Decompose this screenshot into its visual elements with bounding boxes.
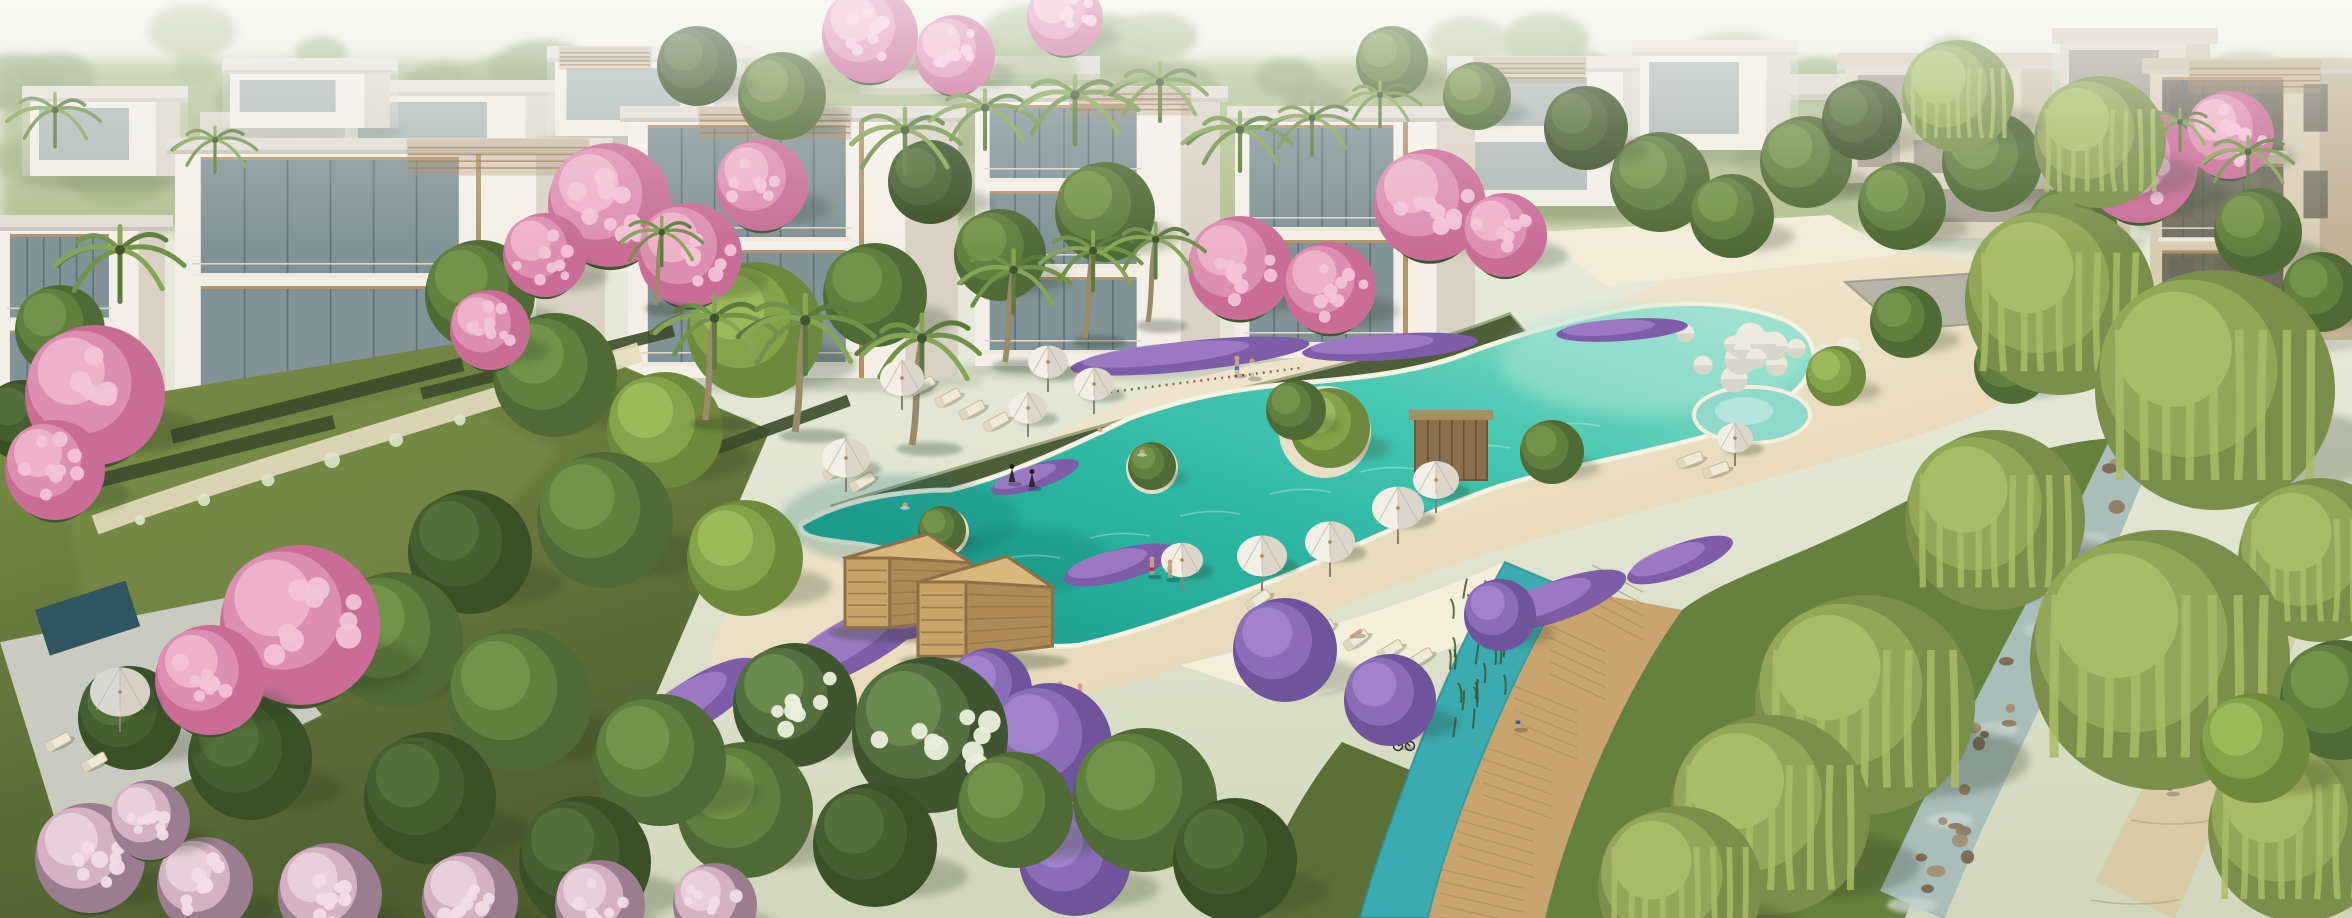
willow-strand	[2039, 253, 2041, 372]
canopy-highlight	[1242, 607, 1292, 657]
blossom-speckle	[959, 709, 975, 725]
person-shadow	[1233, 374, 1247, 379]
parasol-finial	[1092, 382, 1096, 386]
creek-ripple	[1887, 897, 1937, 913]
person-head	[1250, 359, 1255, 364]
cabana-slat	[848, 616, 887, 618]
blossom-speckle	[1264, 269, 1277, 282]
willow-strand	[2108, 595, 2110, 758]
canopy-highlight	[999, 694, 1059, 754]
palm-crown-center	[710, 313, 719, 322]
palm-crown-center	[1009, 266, 1018, 275]
creek-rock	[1948, 823, 1964, 829]
willow-strand	[2190, 330, 2191, 480]
blossom-speckle	[823, 672, 837, 686]
willow-strand	[1744, 847, 1746, 918]
blossom-speckle	[467, 891, 478, 902]
blossom-speckle	[1319, 311, 1331, 323]
person-head	[1078, 684, 1083, 689]
blossom-speckle	[288, 579, 310, 601]
blossom-speckle	[40, 488, 52, 500]
blossom-speckle	[973, 727, 990, 744]
palm-shadow	[897, 442, 963, 456]
canopy-highlight	[824, 794, 884, 854]
blossom-speckle	[70, 466, 84, 480]
pavilion-slat	[1475, 418, 1477, 480]
cabana-slat	[848, 570, 887, 572]
willow-strand	[1994, 475, 1996, 588]
cabana-slat	[921, 594, 963, 596]
canopy-highlight	[23, 293, 66, 336]
white-shrub-ball	[455, 415, 466, 426]
canopy-highlight	[2210, 703, 2263, 756]
blossom-speckle	[1319, 264, 1329, 274]
blossom-speckle	[1358, 280, 1368, 290]
willow-strand	[1663, 847, 1665, 918]
canopy-highlight	[1271, 385, 1300, 414]
person-torso	[1168, 564, 1172, 571]
willow-strand	[1931, 650, 1933, 788]
canopy-highlight	[1526, 426, 1557, 457]
cabana-slat	[848, 604, 887, 606]
canopy-highlight	[419, 501, 479, 561]
creek-rock	[1952, 834, 1968, 847]
willow-strand	[1959, 475, 1961, 588]
balcony-slab	[192, 273, 467, 277]
person-shorts	[1235, 367, 1239, 371]
abaya-head	[1030, 469, 1035, 474]
canopy-highlight	[376, 744, 439, 807]
blossom-speckle	[49, 469, 63, 483]
willow-strand	[2054, 595, 2056, 758]
person-torso	[1150, 561, 1154, 568]
person-head	[1235, 356, 1240, 361]
parasol-finial	[1260, 554, 1264, 558]
willow-strand	[2298, 784, 2300, 899]
blossom-speckle	[1314, 294, 1328, 308]
person-head	[1516, 710, 1521, 715]
white-boulder	[1746, 348, 1766, 368]
blossom-speckle	[484, 325, 495, 336]
person-leg	[1516, 724, 1517, 728]
willow-strand	[1613, 847, 1614, 918]
canopy-highlight	[697, 510, 753, 566]
canopy-highlight	[549, 464, 614, 529]
person-shadow	[2166, 792, 2180, 797]
willow-strand	[1864, 650, 1865, 788]
person-shorts	[1168, 571, 1172, 575]
blossom-speckle	[189, 675, 201, 687]
blossom-speckle	[1327, 293, 1337, 303]
blossom-speckle	[617, 897, 629, 909]
person-shorts	[1516, 721, 1520, 725]
willow-strand	[1713, 847, 1715, 918]
blossom-speckle	[709, 896, 721, 908]
canopy-highlight	[606, 706, 669, 769]
willow-strand	[1922, 475, 1923, 588]
willow-strand	[2319, 519, 2321, 622]
swim-ripple	[1095, 431, 1105, 434]
blossom-speckle	[52, 432, 67, 447]
parasol-finial	[118, 690, 122, 694]
willow-strand	[2048, 475, 2050, 588]
person-leg	[1235, 370, 1236, 374]
canopy-highlight	[1086, 741, 1155, 810]
blossom-speckle	[172, 654, 189, 671]
person-leg	[1253, 373, 1254, 377]
blossom-speckle	[205, 675, 220, 690]
parasol-finial	[1396, 506, 1400, 510]
creek-rock	[1999, 657, 2014, 665]
blossom-speckle	[911, 723, 927, 739]
person-shadow	[1028, 487, 1042, 492]
blossom-speckle	[495, 303, 507, 315]
willow-strand	[2281, 784, 2282, 899]
blossom-speckle	[1335, 277, 1347, 289]
willow-strand	[2336, 784, 2338, 899]
willow-strand	[2030, 475, 2032, 588]
parasol-finial	[844, 456, 848, 460]
blossom-speckle	[18, 463, 31, 476]
palm-shadow	[645, 302, 690, 316]
blossom-speckle	[729, 889, 742, 902]
blossom-speckle	[1234, 279, 1249, 294]
blossom-speckle	[134, 825, 143, 834]
person-torso	[1516, 714, 1520, 721]
willow-strand	[2143, 330, 2145, 480]
canopy-highlight	[832, 252, 882, 302]
balcony-rail	[192, 263, 467, 265]
parasol-finial	[1328, 540, 1332, 544]
palm-shadow	[1136, 319, 1187, 333]
person-leg	[1238, 370, 1239, 374]
willow-strand	[1908, 650, 1910, 788]
willow-strand	[1977, 475, 1979, 588]
person-torso	[1250, 363, 1254, 370]
blossom-speckle	[157, 829, 169, 841]
creek-rock	[1921, 884, 1934, 893]
blossom-speckle	[142, 814, 153, 825]
blossom-speckle	[312, 874, 326, 888]
person-shorts	[1250, 370, 1254, 374]
willow-strand	[2166, 330, 2167, 480]
person-head	[1168, 560, 1173, 565]
atmosphere	[0, 0, 2352, 250]
canopy-highlight	[1470, 585, 1505, 620]
white-boulder	[1787, 339, 1806, 358]
blossom-speckle	[684, 897, 693, 906]
parasol-finial	[900, 376, 904, 380]
blossom-speckle	[1264, 255, 1275, 266]
willow-strand	[2119, 330, 2120, 480]
willow-strand	[1729, 847, 1731, 918]
blossom-speckle	[604, 908, 614, 918]
blossom-speckle	[1228, 293, 1241, 306]
willow-strand	[1829, 765, 1832, 890]
person-torso	[1235, 360, 1239, 367]
canopy-highlight	[922, 510, 945, 533]
cabana-slat	[921, 631, 963, 633]
person-head	[1150, 557, 1155, 562]
cabana-slat	[921, 644, 963, 646]
blossom-speckle	[181, 904, 193, 916]
blossom-speckle	[1214, 257, 1226, 269]
blossom-speckle	[692, 275, 703, 286]
willow-strand	[2012, 475, 2013, 588]
canopy-highlight	[967, 762, 1023, 818]
morning-haze	[0, 0, 2352, 250]
blossom-speckle	[68, 449, 82, 463]
aerial-community-render	[0, 0, 2352, 918]
creek-rock	[1961, 850, 1974, 864]
canopy-highlight	[1811, 351, 1840, 380]
person-shadow	[1514, 728, 1528, 733]
willow-strand	[2001, 253, 2003, 372]
white-shrub-ball	[262, 474, 275, 487]
blossom-speckle	[813, 695, 828, 710]
blossom-speckle	[82, 384, 98, 400]
parasol-finial	[1046, 360, 1050, 364]
swim-ripple	[900, 506, 910, 509]
palm-crown-center	[800, 315, 810, 325]
creek-rock	[2109, 500, 2125, 514]
willow-strand	[2022, 253, 2024, 372]
blossom-speckle	[561, 271, 570, 280]
cabana-slat	[848, 593, 887, 595]
willow-strand	[1680, 847, 1682, 918]
glass-mullion	[1063, 280, 1065, 350]
creek-rock	[2102, 463, 2117, 473]
willow-strand	[2081, 595, 2083, 758]
white-shrub-ball	[198, 494, 210, 506]
blossom-speckle	[98, 387, 117, 406]
canopy-highlight	[531, 808, 594, 871]
canopy-highlight	[461, 641, 530, 710]
blossom-speckle	[512, 261, 521, 270]
willow-strand	[2096, 253, 2098, 372]
willow-strand	[1886, 650, 1887, 788]
blossom-speckle	[77, 868, 90, 881]
willow-strand	[2238, 330, 2240, 480]
willow-strand	[2317, 784, 2320, 899]
cabana-slat	[921, 607, 963, 609]
cabana-slat	[848, 581, 887, 583]
willow-strand	[1953, 650, 1955, 788]
blossom-speckle	[74, 856, 85, 867]
canopy-highlight	[1352, 662, 1396, 706]
person-shadow	[1166, 578, 1180, 583]
pavilion-roof	[1409, 410, 1493, 420]
palm-shadow	[1072, 335, 1126, 349]
blossom-speckle	[708, 266, 723, 281]
willow-strand	[2160, 595, 2162, 758]
willow-strand	[2134, 595, 2136, 758]
blossom-speckle	[771, 705, 783, 717]
pavilion-slat	[1463, 418, 1465, 480]
willow-strand	[1696, 847, 1697, 918]
person-leg	[1150, 571, 1151, 575]
blossom-speckle	[82, 841, 95, 854]
blossom-speckle	[91, 851, 108, 868]
palm-crown-center	[917, 333, 927, 343]
willow-strand	[2303, 519, 2304, 622]
blossom-speckle	[777, 721, 794, 738]
blossom-speckle	[788, 695, 801, 708]
creek-rock	[2002, 720, 2017, 727]
blossom-speckle	[346, 594, 362, 610]
blossom-speckle	[924, 736, 948, 760]
creek-rock	[2006, 704, 2016, 713]
blossom-speckle	[572, 897, 585, 910]
canopy-highlight	[2291, 651, 2349, 709]
blossom-speckle	[199, 879, 211, 891]
white-shrub-ball	[135, 515, 145, 525]
person-shadow	[1148, 575, 1162, 580]
wood-lintel	[201, 286, 459, 289]
willow-strand	[1983, 253, 1986, 372]
blossom-speckle	[694, 890, 703, 899]
blossom-speckle	[482, 300, 495, 313]
willow-strand	[2261, 330, 2263, 480]
person-leg	[1250, 373, 1251, 377]
canopy-highlight	[1132, 446, 1155, 469]
blossom-speckle	[546, 262, 556, 272]
blossom-speckle	[127, 813, 136, 822]
person-leg	[1168, 574, 1169, 578]
blossom-speckle	[534, 274, 546, 286]
willow-strand	[2225, 784, 2227, 899]
blossom-speckle	[84, 346, 103, 365]
person-leg	[1519, 724, 1520, 728]
white-boulder	[1693, 356, 1712, 375]
willow-strand	[1850, 765, 1851, 890]
willow-strand	[1940, 475, 1941, 588]
willow-strand	[1645, 847, 1647, 918]
kids-pool-shallow	[1715, 397, 1773, 425]
parasol-finial	[1180, 558, 1184, 562]
blossom-speckle	[206, 852, 220, 866]
white-shrub-ball	[324, 452, 340, 468]
creek-rock	[1927, 865, 1946, 877]
blossom-speckle	[1235, 263, 1247, 275]
blossom-speckle	[264, 644, 285, 665]
cabana-slat	[921, 619, 963, 621]
palm-shadow	[690, 417, 753, 431]
blossom-speckle	[586, 878, 596, 888]
white-shrub-ball	[389, 433, 403, 447]
person-leg	[1153, 571, 1154, 575]
willow-strand	[2214, 330, 2216, 480]
blossom-speckle	[280, 628, 304, 652]
creek-rock	[1938, 817, 1947, 825]
render-canvas	[0, 0, 2352, 918]
canopy-highlight	[1876, 292, 1911, 327]
blossom-speckle	[499, 331, 508, 340]
swim-ripple	[1137, 453, 1147, 456]
blossom-speckle	[325, 892, 338, 905]
parasol-finial	[1434, 478, 1438, 482]
blossom-speckle	[474, 328, 482, 336]
willow-strand	[2059, 253, 2061, 372]
blossom-speckle	[337, 880, 352, 895]
abaya-head	[1010, 464, 1015, 469]
blossom-speckle	[194, 690, 206, 702]
blossom-speckle	[109, 859, 125, 875]
willow-strand	[2335, 519, 2337, 622]
willow-strand	[2286, 519, 2288, 622]
person-shorts	[1150, 568, 1154, 572]
blossom-speckle	[36, 436, 48, 448]
person-leg	[1171, 574, 1172, 578]
person-shadow	[1248, 377, 1262, 382]
willow-strand	[2310, 330, 2311, 480]
canopy-highlight	[2289, 259, 2327, 297]
blossom-speckle	[336, 623, 362, 649]
blossom-speckle	[790, 707, 806, 723]
canopy-highlight	[45, 813, 98, 866]
blossom-speckle	[871, 731, 888, 748]
canopy-highlight	[1184, 809, 1244, 869]
willow-strand	[1629, 847, 1632, 918]
canopy-highlight	[617, 382, 673, 438]
parasol-finial	[1733, 436, 1737, 440]
willow-strand	[2185, 595, 2186, 758]
person-shadow	[1008, 482, 1022, 487]
parasol-finial	[1026, 406, 1030, 410]
blossom-speckle	[101, 876, 112, 887]
blossom-speckle	[475, 901, 490, 916]
willow-strand	[1770, 765, 1772, 890]
willow-strand	[1788, 765, 1791, 890]
